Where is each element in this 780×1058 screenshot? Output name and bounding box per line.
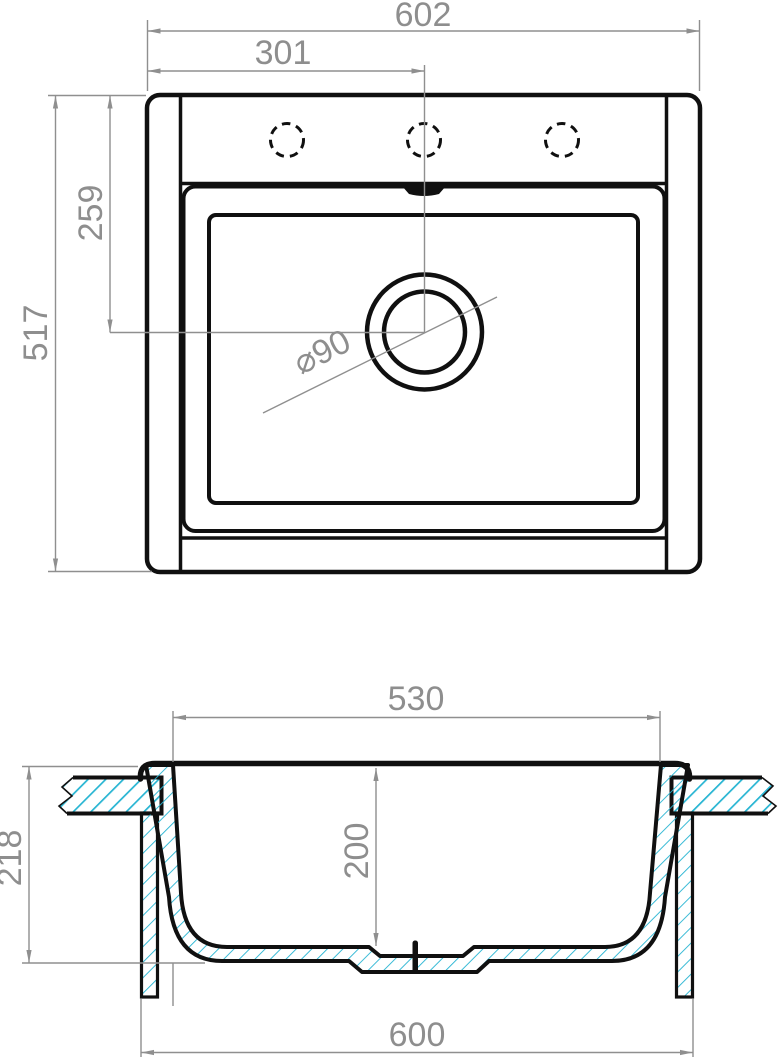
arrow: [107, 320, 112, 333]
labels-section-view: 530 200 218 600: [0, 680, 445, 1054]
sink-rim-line: [140, 764, 689, 780]
arrow: [141, 1050, 154, 1055]
dim-label-218: 218: [0, 830, 29, 887]
dim-label-200: 200: [338, 823, 376, 880]
arrow: [680, 1050, 693, 1055]
countertop-left-hatch: [60, 777, 162, 813]
dim-label-602: 602: [395, 0, 452, 34]
dim-label-259: 259: [72, 185, 110, 242]
arrow: [373, 933, 378, 946]
dim-label-600: 600: [389, 1016, 446, 1054]
arrow: [647, 715, 660, 720]
sink-technical-drawing: 602 301 517 259 ⌀90: [0, 0, 780, 1058]
drain-section-mark: [413, 941, 419, 974]
arrow: [412, 68, 425, 73]
arrow: [26, 950, 31, 963]
arrow: [373, 768, 378, 781]
cabinet-panel-right: [677, 813, 693, 997]
arrow: [148, 68, 161, 73]
arrow: [53, 96, 58, 109]
countertop-left: [59, 777, 162, 814]
dim-label-drain-diameter: ⌀90: [288, 322, 357, 382]
technical-drawing-canvas: 602 301 517 259 ⌀90: [0, 0, 780, 1058]
arrow: [148, 28, 161, 33]
faucet-hole-right: [546, 124, 579, 157]
dim-label-517: 517: [17, 305, 55, 362]
cabinet-panel-left: [142, 813, 158, 997]
faucet-hole-left: [271, 124, 304, 157]
dim-label-530: 530: [388, 680, 445, 718]
arrow: [53, 559, 58, 572]
section-view: [59, 764, 776, 1007]
bowl-floor-outline: [209, 215, 638, 503]
arrow: [107, 96, 112, 109]
arrow: [26, 767, 31, 780]
arrow: [173, 715, 186, 720]
dim-label-301: 301: [255, 34, 312, 72]
sink-body-section: [146, 765, 688, 972]
arrow: [687, 28, 700, 33]
